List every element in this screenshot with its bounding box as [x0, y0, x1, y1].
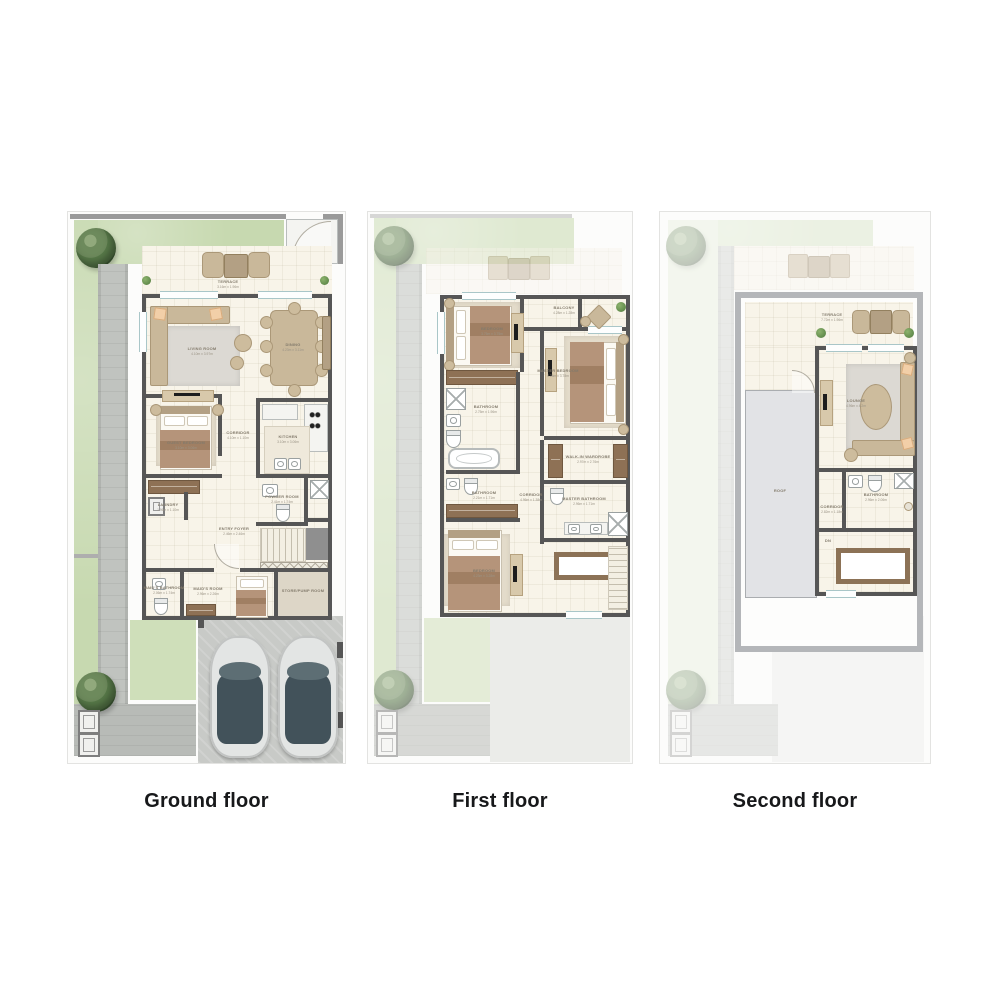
tree-icon — [76, 228, 116, 268]
interior-wall — [842, 472, 846, 528]
shower — [894, 473, 914, 489]
shower — [446, 388, 466, 410]
outdoor-chair — [788, 254, 808, 278]
pillow — [164, 416, 185, 426]
floor-label-first: First floor — [368, 790, 632, 813]
dining-chair — [260, 364, 273, 377]
side-table — [618, 334, 629, 345]
roof-area — [745, 390, 817, 598]
toilet — [154, 598, 168, 615]
boundary-wall-right — [338, 214, 343, 264]
toilet — [868, 475, 882, 492]
living-rug — [166, 326, 240, 386]
bed-headboard — [446, 306, 454, 364]
side-table — [212, 404, 224, 416]
pillow — [606, 348, 616, 380]
side-table — [618, 424, 629, 435]
garden-path — [396, 264, 422, 704]
outdoor-chair — [488, 256, 508, 280]
closet — [446, 504, 518, 518]
side-table — [580, 316, 591, 327]
wardrobe — [613, 444, 628, 478]
ac-unit — [670, 710, 692, 734]
garden-patch-bottom — [424, 618, 490, 702]
side-table — [844, 448, 858, 462]
ground-floor-plan: TERRACE3.16m x 1.96m LIVING ROOM4.10m x … — [68, 212, 345, 763]
window — [868, 344, 904, 352]
tree-icon — [666, 670, 706, 710]
interior-wall — [256, 398, 260, 478]
driveway-wall-stub — [337, 642, 343, 658]
sink — [848, 475, 863, 488]
outdoor-table — [808, 256, 830, 278]
interior-wall — [540, 331, 544, 436]
side-table — [904, 352, 916, 364]
window — [566, 611, 602, 619]
window — [588, 326, 622, 334]
garden-patch-bottom — [130, 620, 196, 700]
window — [462, 292, 516, 300]
pillow — [606, 384, 616, 416]
sink — [262, 484, 278, 497]
sink — [446, 478, 460, 490]
stairs — [260, 528, 306, 562]
outdoor-table — [508, 258, 530, 280]
kitchen-counter — [262, 404, 298, 420]
window — [258, 291, 312, 299]
pillow — [456, 336, 466, 360]
stove-icon — [308, 410, 322, 432]
stair-railing — [836, 548, 910, 584]
kitchen-sink — [274, 458, 287, 470]
tree-icon — [374, 670, 414, 710]
floor-label-second: Second floor — [660, 790, 930, 813]
tree-icon — [666, 226, 706, 266]
tv-console — [162, 390, 214, 402]
garden-path — [718, 246, 734, 756]
first-floor-plan: BEDROOM3.75m x 3.75m BALCONY4.28m x 1.28… — [368, 212, 632, 763]
ac-unit — [670, 733, 692, 757]
pillow — [187, 416, 208, 426]
outdoor-table — [870, 310, 892, 334]
stair-railing — [554, 552, 616, 580]
kitchen-sink — [288, 458, 301, 470]
tv-icon — [514, 324, 518, 340]
sideboard — [322, 316, 331, 370]
stairs — [608, 546, 628, 610]
interior-wall — [180, 572, 184, 616]
shower — [608, 512, 628, 536]
bed-blanket — [570, 342, 604, 422]
interior-wall — [544, 538, 630, 542]
dining-chair — [288, 302, 301, 315]
interior-wall — [308, 518, 328, 522]
oval-table — [860, 384, 892, 430]
dining-chair — [260, 316, 273, 329]
kitchen-island — [264, 426, 310, 474]
plant-icon — [816, 328, 826, 338]
outdoor-chair — [248, 252, 270, 278]
pillow — [456, 310, 466, 334]
outdoor-chair — [852, 310, 870, 334]
tv-icon — [513, 566, 517, 582]
interior-wall — [516, 372, 520, 472]
garden-divider-wall — [74, 554, 98, 558]
wardrobe — [548, 444, 563, 478]
tv-icon — [548, 360, 552, 376]
tv-icon — [174, 393, 200, 396]
interior-wall — [446, 470, 520, 474]
wardrobe — [186, 604, 216, 616]
tree-icon — [76, 672, 116, 712]
stair-ramp — [306, 528, 328, 560]
coffee-table — [230, 356, 244, 370]
store-room — [278, 572, 328, 616]
bed-blanket — [236, 590, 266, 616]
sink — [152, 578, 166, 590]
outdoor-chair — [530, 256, 550, 280]
ac-unit — [376, 710, 398, 734]
bed-headboard — [616, 342, 624, 422]
ac-unit — [78, 710, 100, 734]
window — [160, 291, 218, 299]
window — [437, 312, 445, 354]
plant-icon — [616, 302, 626, 312]
washing-machine-icon — [148, 497, 165, 516]
bed-blanket — [160, 430, 210, 468]
plant-icon — [904, 328, 914, 338]
interior-wall — [146, 474, 222, 478]
pillow — [452, 540, 474, 550]
side-table — [150, 404, 162, 416]
outdoor-table — [224, 254, 248, 278]
pillow — [476, 540, 498, 550]
cushion — [153, 307, 167, 321]
car-top-view — [210, 636, 270, 758]
interior-wall — [819, 528, 913, 532]
plant-icon — [320, 276, 329, 285]
cushion — [209, 307, 223, 321]
bed-headboard — [160, 406, 210, 414]
cushion — [901, 363, 914, 376]
ac-unit — [376, 733, 398, 757]
bed-headboard — [448, 530, 500, 538]
floor-plans-canvas: TERRACE3.16m x 1.96m LIVING ROOM4.10m x … — [0, 0, 1000, 1000]
interior-wall — [544, 436, 630, 440]
car-top-view — [278, 636, 338, 758]
toilet — [276, 504, 290, 522]
pillow — [240, 579, 264, 588]
bathtub — [448, 448, 500, 469]
interior-wall — [544, 480, 630, 484]
window — [826, 344, 862, 352]
window — [826, 590, 856, 598]
interior-wall — [256, 522, 308, 526]
interior-wall — [446, 518, 520, 522]
foyer-closet — [148, 480, 200, 494]
outdoor-chair — [202, 252, 224, 278]
toilet — [464, 478, 478, 495]
second-floor-plan: TERRACE7.72m x 1.96m ROOF LOUNGE4.96m x … — [660, 212, 930, 763]
dining-chair — [260, 340, 273, 353]
dining-chair — [288, 384, 301, 397]
plant-icon — [142, 276, 151, 285]
interior-wall — [184, 492, 188, 520]
interior-wall — [540, 440, 544, 544]
tv-icon — [823, 394, 827, 410]
toilet — [550, 488, 564, 505]
interior-wall — [819, 468, 913, 472]
side-table — [444, 298, 455, 309]
floor-label-ground: Ground floor — [68, 790, 345, 813]
bed-blanket — [448, 556, 500, 610]
toilet — [446, 430, 461, 448]
coffee-table — [234, 334, 252, 352]
dining-table — [270, 310, 318, 386]
outdoor-chair — [830, 254, 850, 278]
bed-blanket — [470, 306, 510, 364]
sink — [568, 524, 580, 534]
interior-wall — [256, 398, 328, 402]
boundary-wall-top — [70, 214, 286, 219]
driveway-ghost — [490, 616, 630, 762]
ac-unit — [78, 733, 100, 757]
closet — [446, 370, 518, 385]
garden-path — [98, 264, 128, 704]
window — [139, 312, 147, 352]
sink — [590, 524, 602, 534]
tree-icon — [374, 226, 414, 266]
sink — [446, 414, 461, 427]
shower — [310, 480, 329, 499]
water-heater-icon — [904, 502, 913, 511]
interior-wall — [256, 474, 328, 478]
